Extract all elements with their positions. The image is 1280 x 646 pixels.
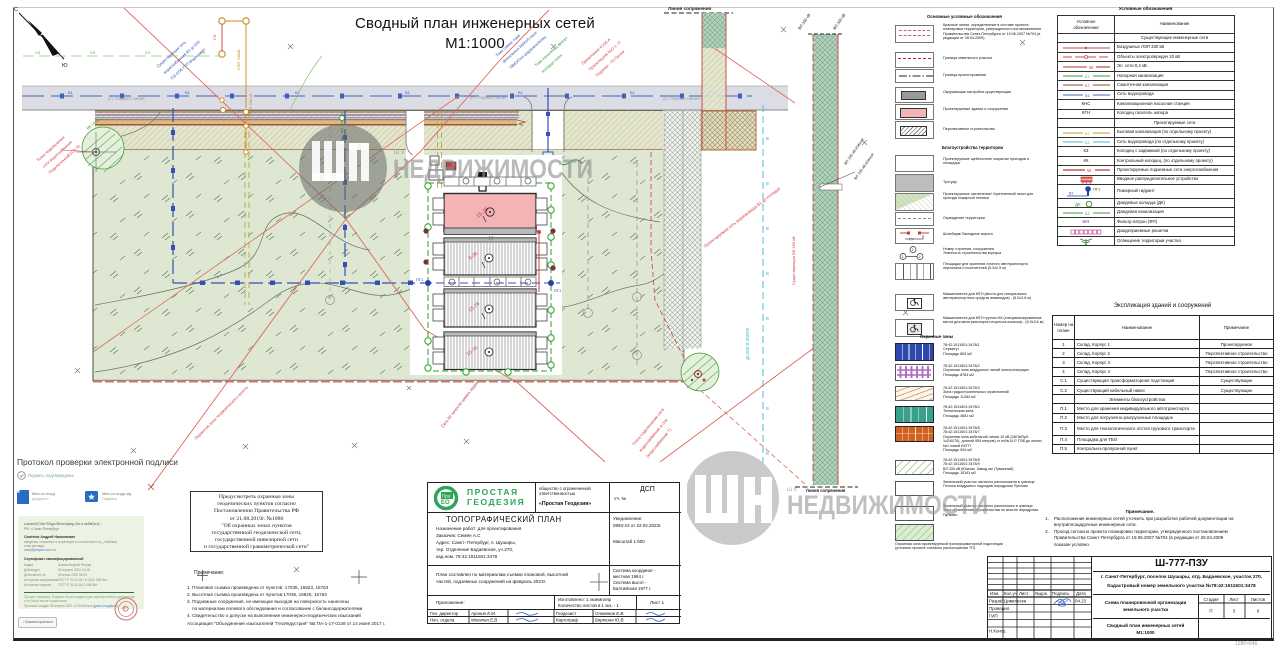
svg-text:W: W <box>1087 168 1092 173</box>
svg-text:НЕДВИЖИМОСТИ: НЕДВИЖИМОСТИ <box>787 490 988 520</box>
svg-text:В: В <box>766 226 769 231</box>
svg-text:Д=200 В-200РЕ: Д=200 В-200РЕ <box>745 328 750 360</box>
svg-text:Проектируемая сеть водопровода: Проектируемая сеть водопровода В1 до кол… <box>703 186 782 249</box>
svg-text:2: 2 <box>919 255 921 259</box>
svg-text:Нач. отдела: Нач. отдела <box>430 618 455 623</box>
svg-text:Лист: Лист <box>1229 597 1239 602</box>
svg-text:Лист: Лист <box>1019 591 1029 596</box>
svg-text:Проверил.: Проверил. <box>989 606 1010 611</box>
svg-text:Охранная зона геодезического п: Охранная зона геодезического пункта <box>193 385 249 441</box>
svg-text:В1: В1 <box>518 90 524 95</box>
svg-text:Бяртиня Ю.В.: Бяртиня Ю.В. <box>595 618 625 623</box>
svg-text:1: 1 <box>912 248 914 252</box>
svg-text:Про: Про <box>442 494 451 499</box>
svg-text:W: W <box>1089 65 1094 70</box>
svg-text:Н.Контр.: Н.Контр. <box>989 629 1007 634</box>
svg-text:К7: К7 <box>1085 131 1090 136</box>
svg-text:Листов: Листов <box>1251 597 1266 602</box>
svg-text:С: С <box>14 7 18 13</box>
svg-text:Подпись: Подпись <box>1052 591 1070 596</box>
svg-text:Ген. директор: Ген. директор <box>430 611 459 616</box>
svg-text:04.23: 04.23 <box>1075 599 1087 604</box>
svg-text:6: 6 <box>1257 609 1260 614</box>
svg-text:Сеть Вт качеств шевел лвдвк: Сеть Вт качеств шевел лвдвк <box>440 380 479 428</box>
svg-text:Мохялин Е.В.: Мохялин Е.В. <box>471 618 498 623</box>
svg-text:В1: В1 <box>1069 192 1073 196</box>
svg-text:В: В <box>766 136 769 141</box>
svg-text:ГИП: ГИП <box>989 614 998 619</box>
svg-text:3: 3 <box>1233 609 1236 614</box>
svg-text:В: В <box>766 271 769 276</box>
svg-text:Ю: Ю <box>62 63 68 69</box>
svg-text:В1: В1 <box>1085 140 1091 145</box>
svg-text:ВЛ 330 кВ: ВЛ 330 кВ <box>832 12 847 30</box>
svg-text:ПГ1: ПГ1 <box>1093 187 1101 192</box>
svg-text:ЛЭ: ЛЭ <box>90 51 95 55</box>
svg-text:Оловянов Е.В.: Оловянов Е.В. <box>595 611 625 616</box>
svg-text:ЕО: ЕО <box>441 500 450 506</box>
svg-text:Картограф: Картограф <box>556 618 578 623</box>
svg-text:1: 1 <box>902 255 904 259</box>
svg-text:В1: В1 <box>185 90 191 95</box>
svg-text:ЛЭП 330кВ: ЛЭП 330кВ <box>236 49 241 70</box>
svg-text:В1: В1 <box>68 90 74 95</box>
svg-text:№док.: №док. <box>1035 591 1048 596</box>
svg-text:В1: В1 <box>1085 93 1091 98</box>
svg-text:К2: К2 <box>1085 211 1090 216</box>
svg-text:ВЛ 330 кВ: ВЛ 330 кВ <box>797 12 812 30</box>
svg-text:ДК: ДК <box>1075 202 1081 207</box>
svg-text:Изм.: Изм. <box>990 591 999 596</box>
svg-text:НЕДВИЖИМОСТИ: НЕДВИЖИМОСТИ <box>393 154 593 184</box>
svg-text:ул. Первая линия: ул. Первая линия <box>108 96 145 101</box>
svg-text:К7: К7 <box>1085 74 1090 79</box>
svg-text:В: В <box>766 406 769 411</box>
svg-text:Существующая ВЛ 330 кВ: Существующая ВЛ 330 кВ <box>791 236 796 285</box>
svg-text:Аронин К.М.: Аронин К.М. <box>470 611 496 616</box>
svg-text:П: П <box>1209 609 1212 614</box>
svg-text:Геодезист: Геодезист <box>556 611 576 616</box>
svg-text:Линия сопряжения: Линия сопряжения <box>668 6 712 11</box>
svg-text:В: В <box>766 316 769 321</box>
svg-text:ВЛ 330 кВ Южная: ВЛ 330 кВ Южная <box>854 153 875 181</box>
svg-text:ПГ1: ПГ1 <box>416 277 424 282</box>
svg-text:В1: В1 <box>630 90 636 95</box>
svg-text:Дата: Дата <box>1076 591 1086 596</box>
svg-text:Кол.уч: Кол.уч <box>1004 591 1017 596</box>
svg-text:В1: В1 <box>405 90 411 95</box>
svg-text:Разраб.: Разраб. <box>989 599 1005 604</box>
svg-text:Цивилнски: Цивилнски <box>1004 599 1027 604</box>
svg-text:ВЛ 330 кВ Южная: ВЛ 330 кВ Южная <box>844 138 865 166</box>
svg-text:ул. Первая линия: ул. Первая линия <box>663 96 700 101</box>
svg-text:ул. Первая линия: ул. Первая линия <box>470 95 507 100</box>
svg-text:ЛЭ: ЛЭ <box>35 51 40 55</box>
svg-text:К7: К7 <box>1085 83 1090 88</box>
svg-text:ЛЭ: ЛЭ <box>213 35 217 40</box>
svg-text:Стадия: Стадия <box>1204 597 1220 602</box>
svg-text:В: В <box>766 181 769 186</box>
svg-text:ЛЭ: ЛЭ <box>145 51 150 55</box>
svg-text:ПГ1: ПГ1 <box>554 288 562 293</box>
svg-text:ГУ: ГУ <box>909 237 914 242</box>
